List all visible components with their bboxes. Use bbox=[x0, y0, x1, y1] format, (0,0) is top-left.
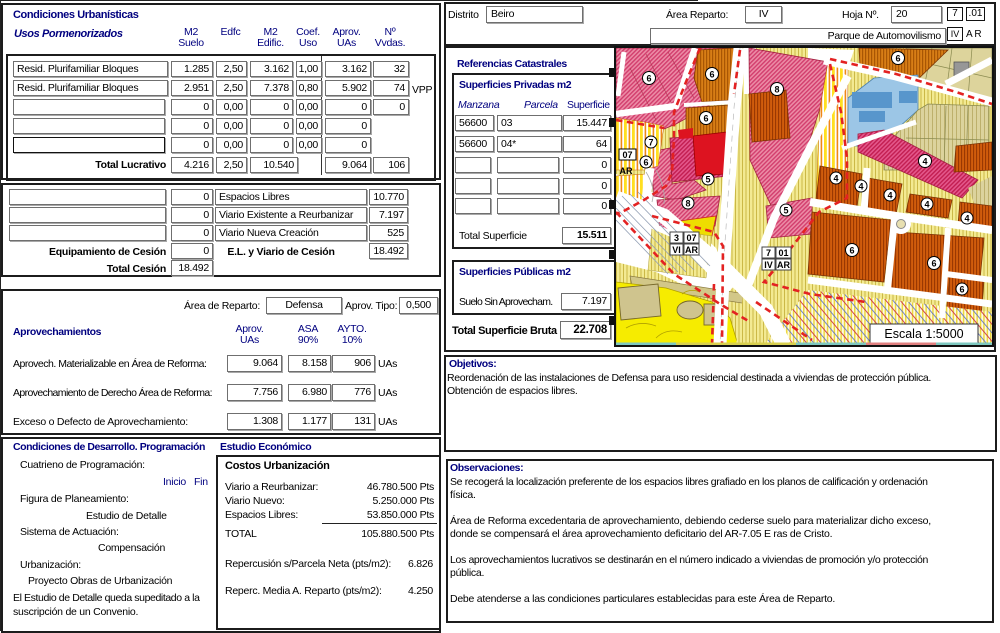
svg-text:6: 6 bbox=[895, 54, 900, 64]
svg-text:6: 6 bbox=[931, 259, 936, 269]
svg-text:7: 7 bbox=[766, 248, 771, 258]
svg-text:VI: VI bbox=[672, 245, 681, 255]
svg-text:01: 01 bbox=[778, 248, 788, 258]
svg-text:IV: IV bbox=[764, 260, 773, 270]
svg-text:07: 07 bbox=[686, 233, 696, 243]
svg-text:AR: AR bbox=[685, 245, 698, 255]
svg-text:4: 4 bbox=[858, 182, 863, 192]
svg-text:3: 3 bbox=[674, 233, 679, 243]
svg-text:7: 7 bbox=[648, 138, 653, 148]
svg-text:4: 4 bbox=[964, 214, 969, 224]
svg-text:5: 5 bbox=[783, 206, 788, 216]
svg-text:8: 8 bbox=[774, 85, 779, 95]
svg-text:AR: AR bbox=[620, 166, 633, 176]
svg-text:6: 6 bbox=[959, 285, 964, 295]
svg-text:4: 4 bbox=[922, 157, 927, 167]
svg-text:6: 6 bbox=[646, 74, 651, 84]
svg-text:AR: AR bbox=[777, 260, 790, 270]
svg-text:6: 6 bbox=[703, 114, 708, 124]
svg-text:Escala 1:5000: Escala 1:5000 bbox=[884, 327, 963, 341]
svg-text:8: 8 bbox=[685, 199, 690, 209]
svg-text:07: 07 bbox=[622, 150, 632, 160]
svg-text:6: 6 bbox=[709, 70, 714, 80]
svg-text:4: 4 bbox=[833, 174, 838, 184]
svg-text:4: 4 bbox=[924, 200, 929, 210]
svg-text:6: 6 bbox=[849, 246, 854, 256]
svg-text:6: 6 bbox=[643, 158, 648, 168]
svg-text:4: 4 bbox=[887, 191, 892, 201]
svg-text:5: 5 bbox=[705, 175, 710, 185]
